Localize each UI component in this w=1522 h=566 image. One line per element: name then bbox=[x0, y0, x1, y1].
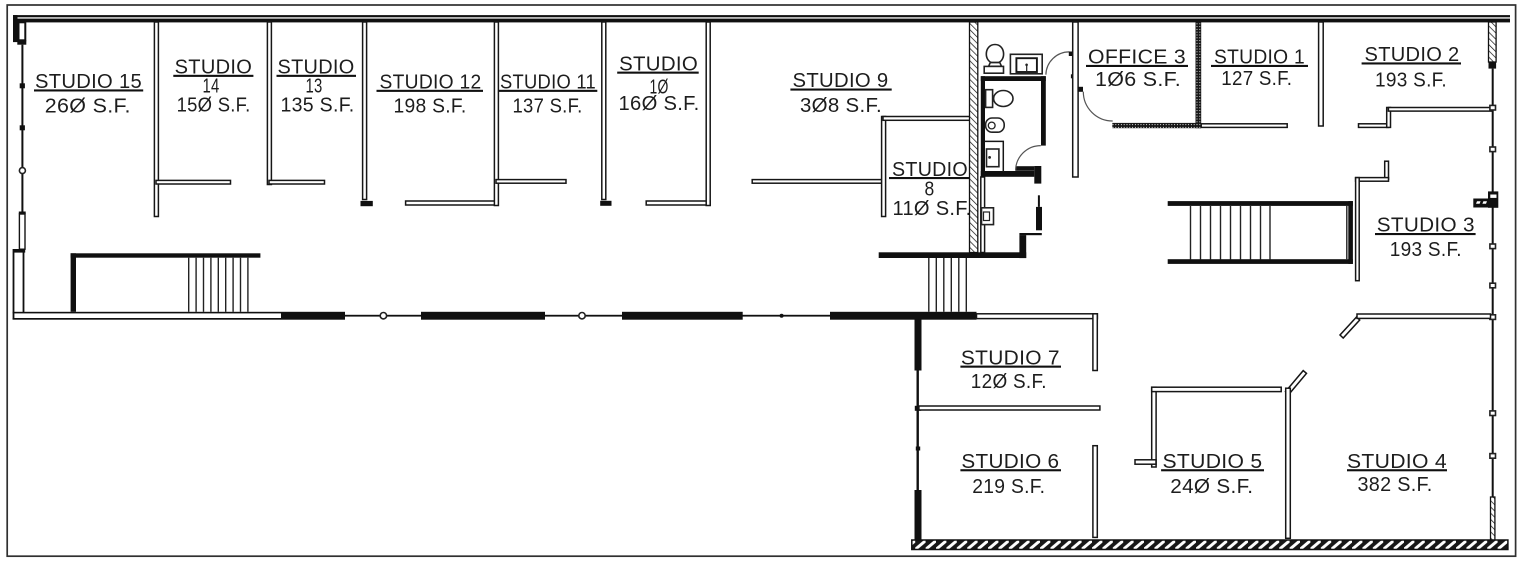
svg-text:1Ø6 S.F.: 1Ø6 S.F. bbox=[1095, 69, 1181, 91]
svg-text:16Ø S.F.: 16Ø S.F. bbox=[619, 93, 700, 115]
svg-text:15Ø S.F.: 15Ø S.F. bbox=[177, 95, 251, 117]
svg-text:137 S.F.: 137 S.F. bbox=[513, 96, 583, 118]
svg-text:198 S.F.: 198 S.F. bbox=[394, 96, 467, 118]
svg-text:127 S.F.: 127 S.F. bbox=[1221, 68, 1292, 90]
svg-text:193 S.F.: 193 S.F. bbox=[1390, 239, 1462, 261]
svg-text:219 S.F.: 219 S.F. bbox=[972, 476, 1045, 498]
svg-text:382 S.F.: 382 S.F. bbox=[1358, 474, 1433, 496]
svg-text:24Ø S.F.: 24Ø S.F. bbox=[1170, 476, 1253, 498]
svg-text:3Ø8 S.F.: 3Ø8 S.F. bbox=[800, 95, 882, 117]
svg-text:193 S.F.: 193 S.F. bbox=[1375, 69, 1447, 91]
svg-text:135 S.F.: 135 S.F. bbox=[281, 95, 355, 117]
svg-text:26Ø S.F.: 26Ø S.F. bbox=[45, 96, 131, 118]
svg-text:12Ø S.F.: 12Ø S.F. bbox=[971, 371, 1047, 393]
svg-text:11Ø S.F.: 11Ø S.F. bbox=[893, 198, 972, 220]
